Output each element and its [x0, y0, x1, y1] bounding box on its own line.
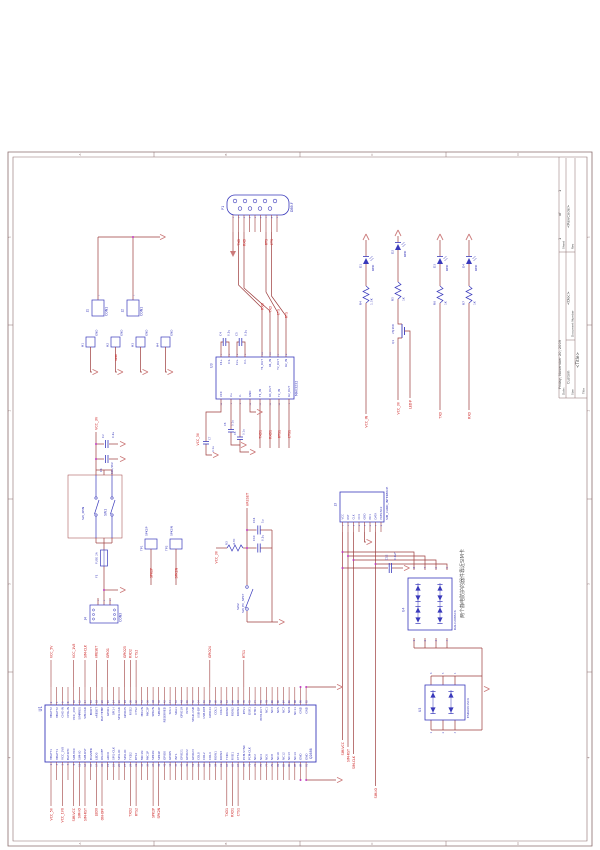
pin-name: GPIO23 [191, 749, 195, 760]
pin-name: COL4 [208, 752, 212, 760]
pin-name: SPK2P [145, 526, 149, 536]
pin-name: CTS1 [236, 752, 240, 760]
pin-name: RTS2 [134, 753, 138, 760]
pin-name: GND [170, 330, 174, 336]
part-value: 0.1u [244, 330, 248, 336]
pin-name: GND [248, 391, 252, 397]
pin-name: ADC0 [106, 752, 110, 760]
part-value: RED [403, 250, 407, 257]
pin-name: NC11 [293, 707, 297, 715]
net-label: VCC_3V [215, 550, 219, 563]
pin-name: V- [238, 394, 242, 397]
pin-name: NC5 [276, 707, 280, 713]
part-value: 0.1u [242, 429, 246, 435]
ref-designator: D4 [462, 264, 466, 268]
junction-dot [300, 779, 302, 781]
net-label: RXD1 [269, 430, 273, 439]
pin-name: BAT-TEMP [100, 707, 104, 721]
part-value: 1u [261, 519, 265, 523]
net-label: RTS1 [242, 650, 246, 658]
ref-designator: U4 [402, 608, 406, 612]
pin-name: ROW0 [225, 707, 229, 716]
ref-designator: Q1 [391, 340, 395, 344]
ref-designator: U5 [418, 708, 422, 712]
part-value: 10u/16V [110, 462, 114, 474]
net-label: RXD [468, 411, 472, 418]
part-value: FUSE 2A [95, 552, 99, 564]
net-label: TXD1 [225, 808, 229, 818]
ref-designator: J4 [84, 617, 88, 621]
zone-letter: B [224, 843, 228, 845]
net-label: VCC_1V8 [61, 808, 65, 822]
ref-designator: R5 [391, 297, 395, 301]
ref-designator: R3 [225, 541, 229, 545]
ref-designator: TP2 [165, 545, 169, 552]
net-label: VCC_3V [95, 416, 99, 430]
pin-name: VPAD-USB [191, 707, 195, 722]
ref-designator: D2 [391, 250, 395, 254]
net-label: GPIO25 [123, 646, 127, 658]
part-value: Q2686 [309, 748, 313, 759]
pin-name: TXD2 [128, 752, 132, 761]
part-value: 0.1u [227, 330, 231, 336]
pin-name: COL3 [219, 707, 223, 715]
net-label: VCC_1V8 [72, 644, 76, 658]
ref-designator: C7 [208, 436, 212, 440]
pin-name: DTR1 [253, 707, 257, 715]
pin-name: NC8 [270, 754, 274, 760]
pin-name: T1_OUT [260, 359, 264, 371]
pin-name: CLK [352, 514, 356, 519]
junction-dot [375, 563, 377, 565]
net-label: SIM-IO [374, 788, 378, 799]
pin-name: RXD1 [231, 752, 235, 760]
schematic-page: AABBCCDD11223344 Title <Title> Size Cust… [0, 0, 600, 850]
net-label: VCC_IN [365, 415, 369, 427]
pin-name: NC1 [265, 707, 269, 713]
pin-name: SIM-VCC [72, 748, 76, 760]
part-value: CON3 [119, 613, 123, 622]
net-label: SIM-VCC [72, 807, 76, 821]
net-label: CTS2 [134, 650, 138, 658]
sheet-background [0, 0, 600, 850]
pin-name: TXD1 [225, 752, 229, 761]
pin-name: NC12 [282, 752, 286, 760]
pin-name: VCC [341, 514, 345, 520]
pin-name: ROW3 [219, 751, 223, 760]
size-label: Size [571, 389, 575, 395]
pin-name: ROW2 [231, 707, 235, 716]
net-label: TXD [237, 238, 241, 246]
net-label: CTS [277, 309, 281, 315]
rev-label: Rev [571, 243, 575, 249]
pin-name: SIM-CLK [83, 707, 87, 719]
net-label: LED# [409, 400, 413, 409]
part-value: CON1 [140, 307, 144, 316]
ref-designator: J1 [86, 309, 90, 313]
pin-name: nRESET [94, 707, 98, 718]
sheet-label: Sheet [562, 240, 566, 249]
ref-designator: R6 [433, 301, 437, 305]
net-label: SIM-VCC [341, 741, 345, 755]
pin-name: R2_IN [284, 359, 288, 367]
pin-name: SPI2-CLK [117, 707, 121, 720]
pin-name: ON-OFF [100, 749, 104, 760]
pin-name: T1_IN [258, 389, 262, 398]
ref-designator: U1 [38, 706, 43, 712]
pin-name: GPIO0 [163, 751, 167, 760]
zone-letter: C [370, 154, 374, 156]
junction-dot [342, 567, 344, 569]
net-label: GPIO1 [106, 648, 110, 658]
pin-name: NC10 [276, 752, 280, 760]
ref-designator: C1 [99, 468, 103, 472]
net-label: nRESET [246, 492, 250, 506]
pin-name: SPK2N [170, 526, 174, 536]
pin-name: GND [304, 753, 308, 760]
pin-name: PCM-CLK [248, 747, 252, 760]
pin-name: NC13 [287, 752, 291, 760]
pin-name: C2+ [235, 358, 239, 365]
pin-name: USB-DM [202, 707, 206, 719]
pin-name: GPIO22 [185, 749, 189, 760]
net-label: VCC_3V [196, 432, 200, 445]
junction-dot [246, 529, 248, 531]
pin-name: VCC [219, 391, 223, 397]
net-label: SIM-RST [347, 749, 351, 762]
net-label: SIM-IO [78, 808, 82, 819]
junction-dot [246, 547, 248, 549]
pin-name: VCC_2V8 [72, 707, 76, 720]
part-value: DALC208SC6 [453, 610, 457, 630]
net-label: RTS [265, 239, 269, 245]
part-value: 0.1uF [393, 552, 397, 560]
pin-name: CTS2 [134, 707, 138, 715]
pin-name: VBATT1 [55, 749, 59, 760]
junction-dot [305, 779, 307, 781]
ref-designator: H2 [106, 343, 110, 347]
pin-name: RXD2 [128, 707, 132, 715]
pin-name: MIC2N [140, 707, 144, 716]
net-label: RXD1 [231, 808, 235, 817]
part-value: RED [445, 264, 449, 271]
zone-number: 2 [587, 410, 591, 412]
junction-dot [305, 686, 307, 688]
net-label: RTS2 [134, 808, 138, 816]
ref-designator: R4 [359, 301, 363, 305]
ref-designator: P1 [221, 206, 225, 210]
pin-name: DSR1 [248, 707, 252, 715]
part-value: 4.7K [232, 539, 236, 545]
pin-name: C2- [243, 359, 247, 364]
zone-number: 1 [8, 236, 12, 238]
pin-name: T2_IN [277, 389, 281, 398]
pin-name: C1- [227, 359, 231, 364]
pin-name: VBATT1 [49, 749, 53, 760]
ref-designator: J2 [121, 309, 125, 313]
ref-designator: SW1 [104, 509, 108, 516]
ref-designator: C6 [223, 422, 227, 426]
pin-name: PCM-SYNC [242, 745, 246, 760]
schematic-canvas: AABBCCDD11223344 Title <Title> Size Cust… [0, 0, 600, 850]
pin-name: SPI1-IO [117, 749, 121, 760]
junction-dot [353, 559, 355, 561]
net-label: SPK2N [157, 807, 161, 818]
zone-number: 3 [587, 583, 591, 585]
net-label: TXD2 [129, 808, 133, 818]
ref-designator: D1 [359, 264, 363, 268]
pin-name: SPI1-I [111, 707, 115, 715]
ref-designator: C12 [385, 554, 389, 560]
pin-name: GND [95, 330, 99, 336]
pin-name: R1_OUT [268, 386, 272, 397]
part-value: 0.1u [111, 432, 115, 438]
zone-letter: A [78, 154, 82, 156]
pin-name: SPI1-CLK [111, 747, 115, 760]
pin-name: MIC1N [140, 751, 144, 760]
net-label: RTS1 [278, 430, 282, 438]
pin-name: GPIO1 [106, 707, 110, 716]
date-label: Date: [562, 387, 566, 395]
zone-number: 1 [587, 236, 591, 238]
part-value: 2SJ168 [391, 324, 395, 334]
pin-name: PCM-OUT [259, 707, 263, 721]
net-label: VCC_5V [49, 645, 53, 658]
pin-name: NC1 [368, 514, 372, 520]
pin-name: SPI2-IO [123, 749, 127, 760]
zone-number: 4 [8, 757, 12, 759]
ref-designator: J3 [334, 503, 338, 507]
net-label: TXD [439, 411, 443, 419]
pin-name: R1_IN [268, 359, 272, 367]
pin-name: DATA [374, 513, 378, 520]
pin-name: RTS1 [242, 707, 246, 714]
title-label: Title [582, 388, 586, 395]
net-label: TXD [269, 305, 273, 313]
pin-name: GND [145, 330, 149, 336]
pin-name: INT0 [185, 707, 189, 714]
pin-name: SIM-RST [83, 748, 87, 760]
pin-name: ROW1 [214, 751, 218, 760]
net-label: LED0 [95, 808, 99, 816]
ref-designator: D3 [433, 264, 437, 268]
ref-designator: C2 [101, 434, 105, 438]
part-value: SW_PC_SPST [241, 594, 245, 613]
ref-designator: C11 [252, 517, 256, 523]
pin-name: R2_OUT [287, 386, 291, 397]
pin-name: NC2 [253, 754, 257, 760]
part-value: 0.1u [261, 535, 265, 541]
pin-name: NC7 [282, 707, 286, 713]
part-value: CON1 [105, 307, 109, 316]
pin-name: GPIO21 [180, 749, 184, 760]
pin-name: NC4 [259, 754, 263, 760]
pin-name: VCC_1V8 [60, 747, 64, 760]
junction-dot [95, 458, 97, 460]
ref-designator: H4 [156, 343, 160, 347]
net-label: SIM-RST [83, 808, 87, 821]
pin-name: NC9 [287, 707, 291, 713]
sheet-total: 1 [558, 190, 562, 192]
junction-dot [95, 443, 97, 445]
pin-name: INT1 [174, 753, 178, 760]
zone-letter: C [370, 843, 374, 845]
pin-name: USB-DP [197, 707, 201, 718]
ref-designator: U3 [210, 363, 214, 368]
pin-name: CHG-IN [66, 707, 70, 718]
ref-designator: C4 [219, 332, 223, 336]
part-value: 1.5K [370, 297, 374, 305]
ref-designator: H1 [81, 343, 85, 347]
pin-name: GND [363, 514, 367, 520]
part-value: SIM_CARD_INTERFACE [385, 487, 389, 520]
zone-number: 3 [8, 583, 12, 585]
pin-name: PRES:NC2 [379, 506, 383, 519]
part-value: 0.1u [231, 420, 235, 426]
pin-name: GND [120, 330, 124, 336]
net-label: VCC_3V [397, 401, 401, 414]
pin-name: BUZZER [89, 748, 93, 760]
junction-dot [103, 589, 105, 591]
junction-dot [347, 555, 349, 557]
part-value: SW_4PIN [81, 507, 85, 520]
net-label: VCC_5V [49, 807, 53, 820]
pin-name: T2_OUT [276, 359, 280, 371]
date-value: Friday, November 20, 2009 [558, 339, 562, 389]
pin-name: COL0 [197, 752, 201, 760]
pin-name: GND [299, 753, 303, 760]
net-label: RXD [243, 238, 247, 245]
sim-esd-note: 两个静电防护的器件靠近SIM卡 [459, 549, 466, 618]
docnum-label: Document Number [571, 310, 575, 337]
ref-designator: C8 [233, 431, 237, 435]
pin-name: NC14 [293, 752, 297, 760]
pin-name: GPIO25 [123, 707, 127, 718]
ref-designator: C5 [235, 332, 239, 336]
pin-name: NC6 [265, 754, 269, 760]
pin-name: NC3 [270, 707, 274, 713]
net-label: ON-OFF [100, 808, 104, 820]
part-value: MAX3232 [295, 381, 299, 396]
net-label: CTS1 [288, 430, 292, 438]
pin-name: GND [304, 706, 308, 713]
net-label: RTS [285, 312, 289, 318]
pin-name: COL1 [214, 707, 218, 715]
pin-name: SDA1 [174, 707, 178, 715]
pin-name: CC4 [357, 514, 361, 520]
net-label: nRESET [95, 646, 99, 658]
pin-name: SPK1P [157, 751, 161, 760]
net-label: RXD [261, 302, 265, 309]
ref-designator: C10 [252, 535, 256, 541]
net-label: SPK2P [150, 568, 154, 578]
pin-name: RESERVED [163, 706, 167, 722]
part-value: DB9-F [290, 202, 294, 212]
part-value: RED [474, 264, 478, 271]
net-label: SPK2N [175, 567, 179, 578]
junction-dot [132, 236, 134, 238]
part-value: 0.1u [211, 446, 215, 452]
net-label: TXD1 [259, 430, 263, 440]
zone-letter: D [516, 153, 520, 155]
pin-name: SIMPRES [77, 707, 81, 720]
net-label: SIM-CLK [83, 644, 87, 658]
net-label: GND [114, 353, 118, 361]
zone-number: 2 [8, 410, 12, 412]
pin-name: MIC2P [145, 707, 149, 716]
net-label: CTS1 [236, 808, 240, 816]
pin-name: V+ [229, 392, 233, 397]
net-label: SIM-CLK [352, 755, 356, 769]
pin-name: C1+ [219, 358, 223, 365]
pin-name: ROW4 [236, 707, 240, 716]
size-value: Custom [567, 370, 571, 384]
part-value: RED [371, 264, 375, 271]
net-label: SPK2P [151, 808, 155, 818]
zone-letter: B [224, 154, 228, 156]
pin-name: VBATT2 [55, 707, 59, 718]
ref-designator: H3 [131, 343, 135, 347]
zone-letter: A [78, 843, 82, 845]
pin-name: BOOT [89, 707, 93, 715]
part-value: ESDA6V1SC6 [466, 698, 470, 718]
ref-designator: SW2 [236, 603, 240, 610]
pin-name: GPIO24 [208, 707, 212, 718]
pin-name: VBATT2 [49, 707, 53, 718]
pin-name: GPIO19 [180, 707, 184, 718]
pin-name: COL2 [202, 752, 206, 760]
net-label: GPIO24 [208, 646, 212, 658]
zone-number: 4 [587, 757, 591, 759]
net-label: CTS [270, 239, 274, 245]
ref-designator: R7 [462, 301, 466, 305]
sheet-number: 1 [558, 238, 562, 240]
pin-name: GPIO5 [168, 751, 172, 760]
pin-name: RST [346, 514, 350, 519]
junction-dot [342, 551, 344, 553]
pin-name: BAT-RTC [66, 748, 70, 760]
pin-name: SIM-IO [77, 750, 81, 760]
zone-letter: D [516, 842, 520, 844]
pin-name: SPK2N [151, 707, 155, 716]
pin-name: SPK2P [157, 707, 161, 716]
pin-name: SCL1 [168, 707, 172, 714]
pin-name: GND [299, 706, 303, 713]
ref-designator: TP1 [140, 545, 144, 552]
ref-designator: F1 [95, 574, 99, 578]
pin-name: MIC1P [145, 751, 149, 760]
title-value: <Title> [575, 352, 580, 368]
junction-dot [300, 686, 302, 688]
net-label: RXD2 [129, 649, 133, 658]
pin-name: CHG-IN [60, 707, 64, 718]
pin-name: SPK1N [151, 751, 155, 760]
pin-name: LED0 [94, 752, 98, 760]
